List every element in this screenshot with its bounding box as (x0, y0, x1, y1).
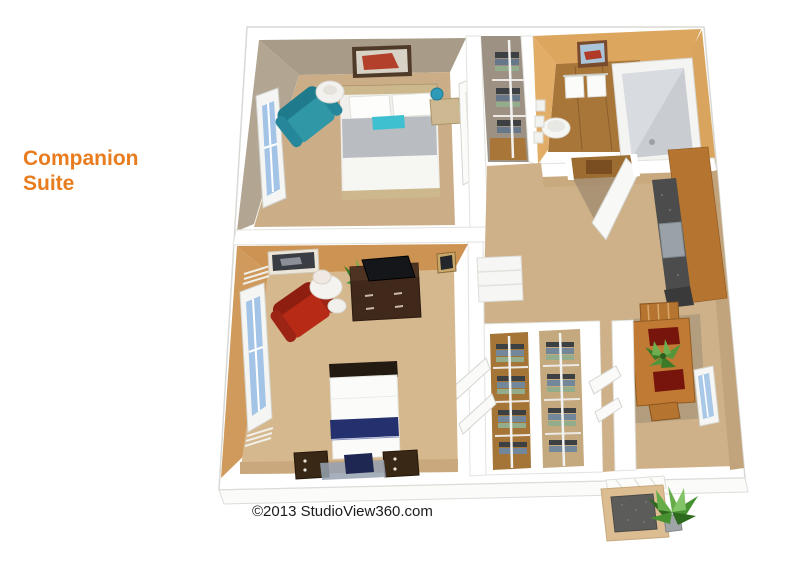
stool (328, 299, 346, 313)
placemat (648, 327, 680, 346)
bedroom-2 (221, 244, 468, 480)
bathroom-wall-art (577, 40, 608, 68)
dining-chair (649, 402, 680, 421)
floorplan-rendering (0, 0, 800, 585)
hall-closet-top (481, 36, 541, 166)
copyright-text: ©2013 StudioView360.com (252, 503, 433, 520)
navy-cushion (344, 453, 374, 474)
page: Companion Suite (0, 0, 800, 585)
placemat (653, 369, 685, 392)
tv (362, 256, 415, 281)
table-lamp (313, 270, 331, 284)
bedroom-2-wall-art (268, 249, 319, 275)
wardrobe-closet-left (490, 332, 531, 470)
nightstand-right (383, 450, 419, 477)
bedroom-1-wall-art (352, 45, 412, 78)
double-bed (338, 84, 440, 200)
linen-cabinet (477, 256, 523, 302)
bathroom (533, 29, 716, 168)
kitchen-appliance (659, 222, 685, 258)
sink (542, 118, 570, 138)
small-frame (437, 252, 456, 273)
bedroom-1 (237, 38, 486, 231)
wall-dispensers (534, 100, 545, 143)
wardrobe-closet-right (539, 329, 584, 468)
wardrobe-closets (481, 320, 636, 475)
teal-vase (431, 88, 443, 100)
bed-2 (329, 361, 400, 459)
floor-lamp (316, 81, 344, 103)
